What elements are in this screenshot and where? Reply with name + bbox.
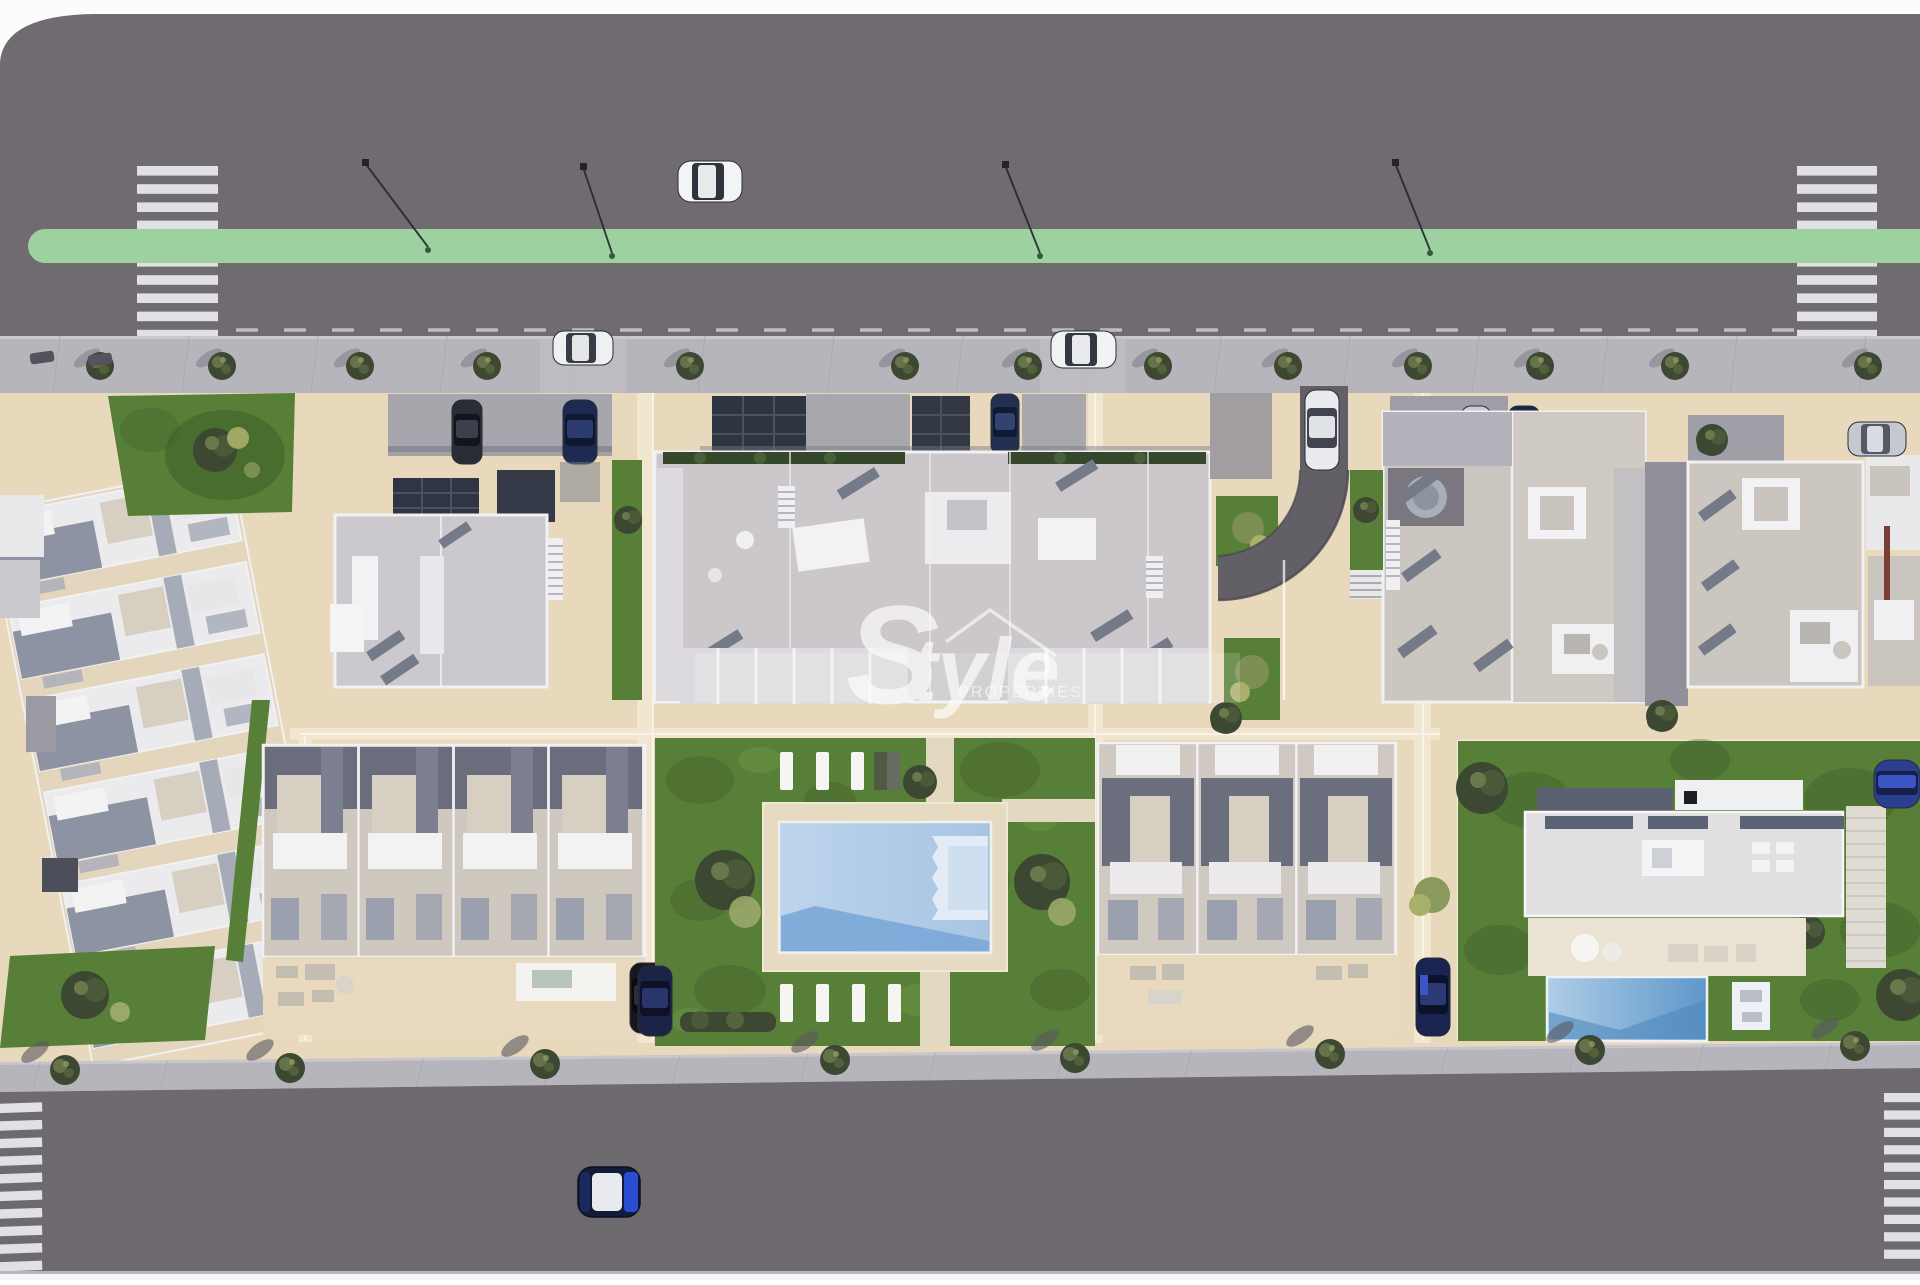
svg-text:PROPERTIES: PROPERTIES <box>958 684 1083 701</box>
svg-text:tyle: tyle <box>908 620 1060 719</box>
